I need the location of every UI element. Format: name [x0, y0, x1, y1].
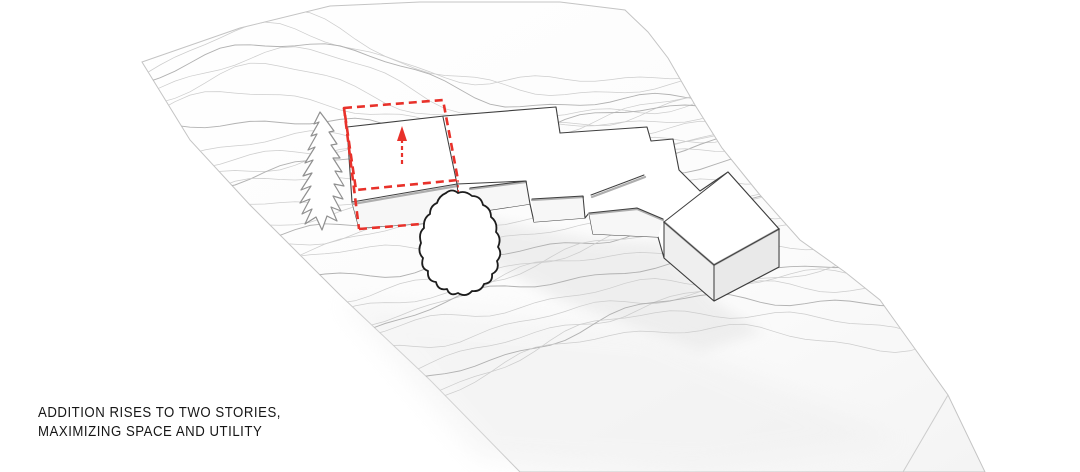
caption-line-1: ADDITION RISES TO TWO STORIES, [38, 404, 281, 423]
site-diagram [0, 0, 1080, 472]
caption-line-2: MAXIMIZING SPACE AND UTILITY [38, 423, 281, 442]
caption: ADDITION RISES TO TWO STORIES, MAXIMIZIN… [38, 404, 281, 441]
terrain [130, 2, 1000, 472]
site-diagram-canvas: ADDITION RISES TO TWO STORIES, MAXIMIZIN… [0, 0, 1080, 472]
